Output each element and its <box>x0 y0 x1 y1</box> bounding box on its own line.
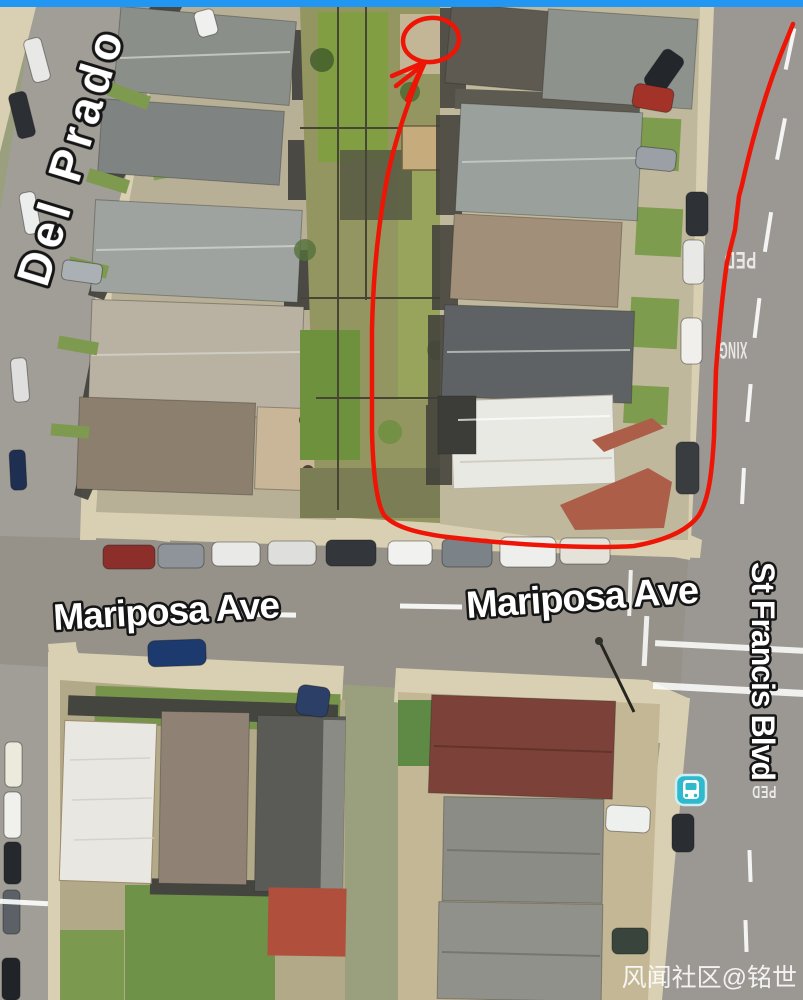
parked-car <box>158 544 204 568</box>
parked-car <box>295 684 331 718</box>
car-on-road <box>148 639 207 667</box>
satellite-map-image: PED XING PED Del Prado Mariposa Ave Mari… <box>0 0 803 1000</box>
ped-marking-lower: PED <box>752 781 777 801</box>
parked-car <box>326 540 376 566</box>
parked-car <box>612 928 648 954</box>
parked-car <box>5 742 22 787</box>
parked-car <box>212 542 260 566</box>
parked-car <box>560 538 610 564</box>
watermark-text: 风闻社区@铭世 <box>622 964 797 992</box>
parked-car <box>3 890 20 934</box>
house-roof <box>437 902 603 1000</box>
parked-car <box>9 450 27 491</box>
house-roof <box>159 711 250 885</box>
building-annex-dark <box>438 396 476 454</box>
satellite-map-screenshot: PED XING PED Del Prado Mariposa Ave Mari… <box>0 0 803 1000</box>
parked-car <box>388 541 432 565</box>
parked-car <box>676 442 699 494</box>
house-roof <box>450 214 622 308</box>
xing-marking-upper: XING <box>719 337 748 364</box>
parked-car <box>103 545 155 569</box>
parked-car <box>268 541 316 565</box>
bus-stop-icon[interactable] <box>676 775 706 805</box>
app-top-bar <box>0 0 803 7</box>
parked-car <box>4 842 21 884</box>
house-roof <box>76 397 255 495</box>
house-roof <box>98 99 285 186</box>
block-lower-left <box>59 680 346 1000</box>
parked-car <box>672 814 694 852</box>
street-label-st-francis: St Francis Blvd <box>745 562 781 780</box>
building-white <box>59 720 157 883</box>
red-patio <box>267 887 346 956</box>
house-roof <box>441 305 634 404</box>
parked-car <box>683 240 704 284</box>
parked-car <box>605 805 650 833</box>
parked-car <box>10 357 30 402</box>
parked-car <box>4 792 21 838</box>
house-roof <box>91 200 303 303</box>
parked-car <box>686 192 708 236</box>
parked-car <box>2 958 20 1000</box>
parked-car <box>635 146 677 172</box>
playset-lawn <box>398 700 434 766</box>
parked-car <box>681 318 702 364</box>
